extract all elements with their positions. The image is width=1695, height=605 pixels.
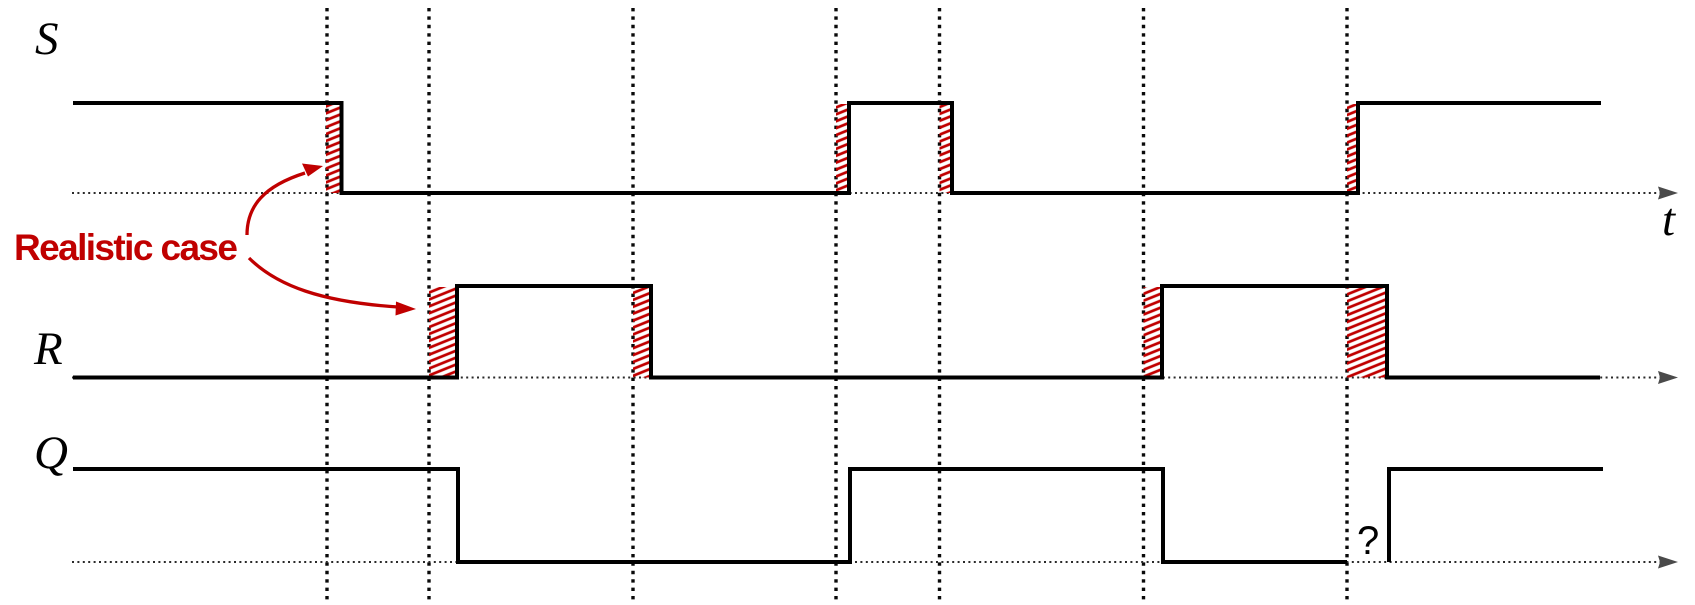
svg-text:?: ? — [1357, 519, 1379, 563]
svg-text:R: R — [33, 323, 63, 375]
svg-text:S: S — [35, 13, 59, 65]
svg-text:Realistic case: Realistic case — [14, 227, 237, 268]
svg-text:t: t — [1662, 194, 1676, 246]
svg-text:Q: Q — [34, 427, 68, 479]
